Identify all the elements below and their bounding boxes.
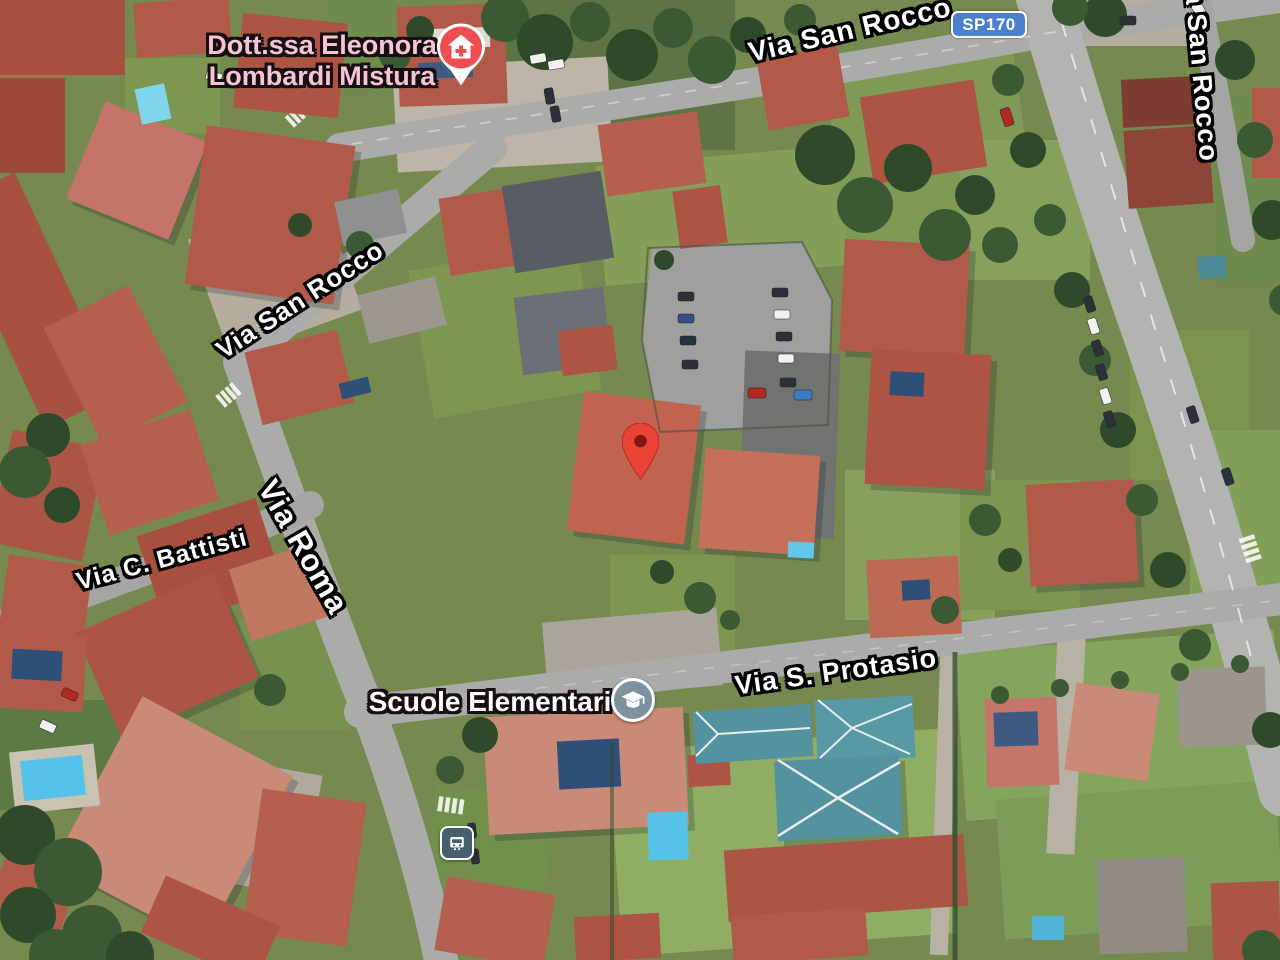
satellite-map-canvas[interactable]: Via San Rocco Via San Rocco Via San Rocc…	[0, 0, 1280, 960]
school-icon[interactable]	[611, 678, 655, 722]
health-pin-icon[interactable]	[434, 22, 488, 95]
poi-label-doctor-line1: Dott.ssa Eleonora	[207, 30, 437, 61]
route-badge-sp170: SP170	[951, 11, 1027, 38]
poi-label-doctor-line2: Lombardi Mistura	[207, 61, 437, 92]
poi-label-doctor[interactable]: Dott.ssa Eleonora Lombardi Mistura	[207, 30, 437, 92]
destination-pin[interactable]	[622, 423, 659, 485]
poi-label-school[interactable]: Scuole Elementari	[369, 686, 612, 718]
bus-icon	[440, 826, 474, 860]
bus-stop-icon[interactable]	[440, 826, 474, 860]
